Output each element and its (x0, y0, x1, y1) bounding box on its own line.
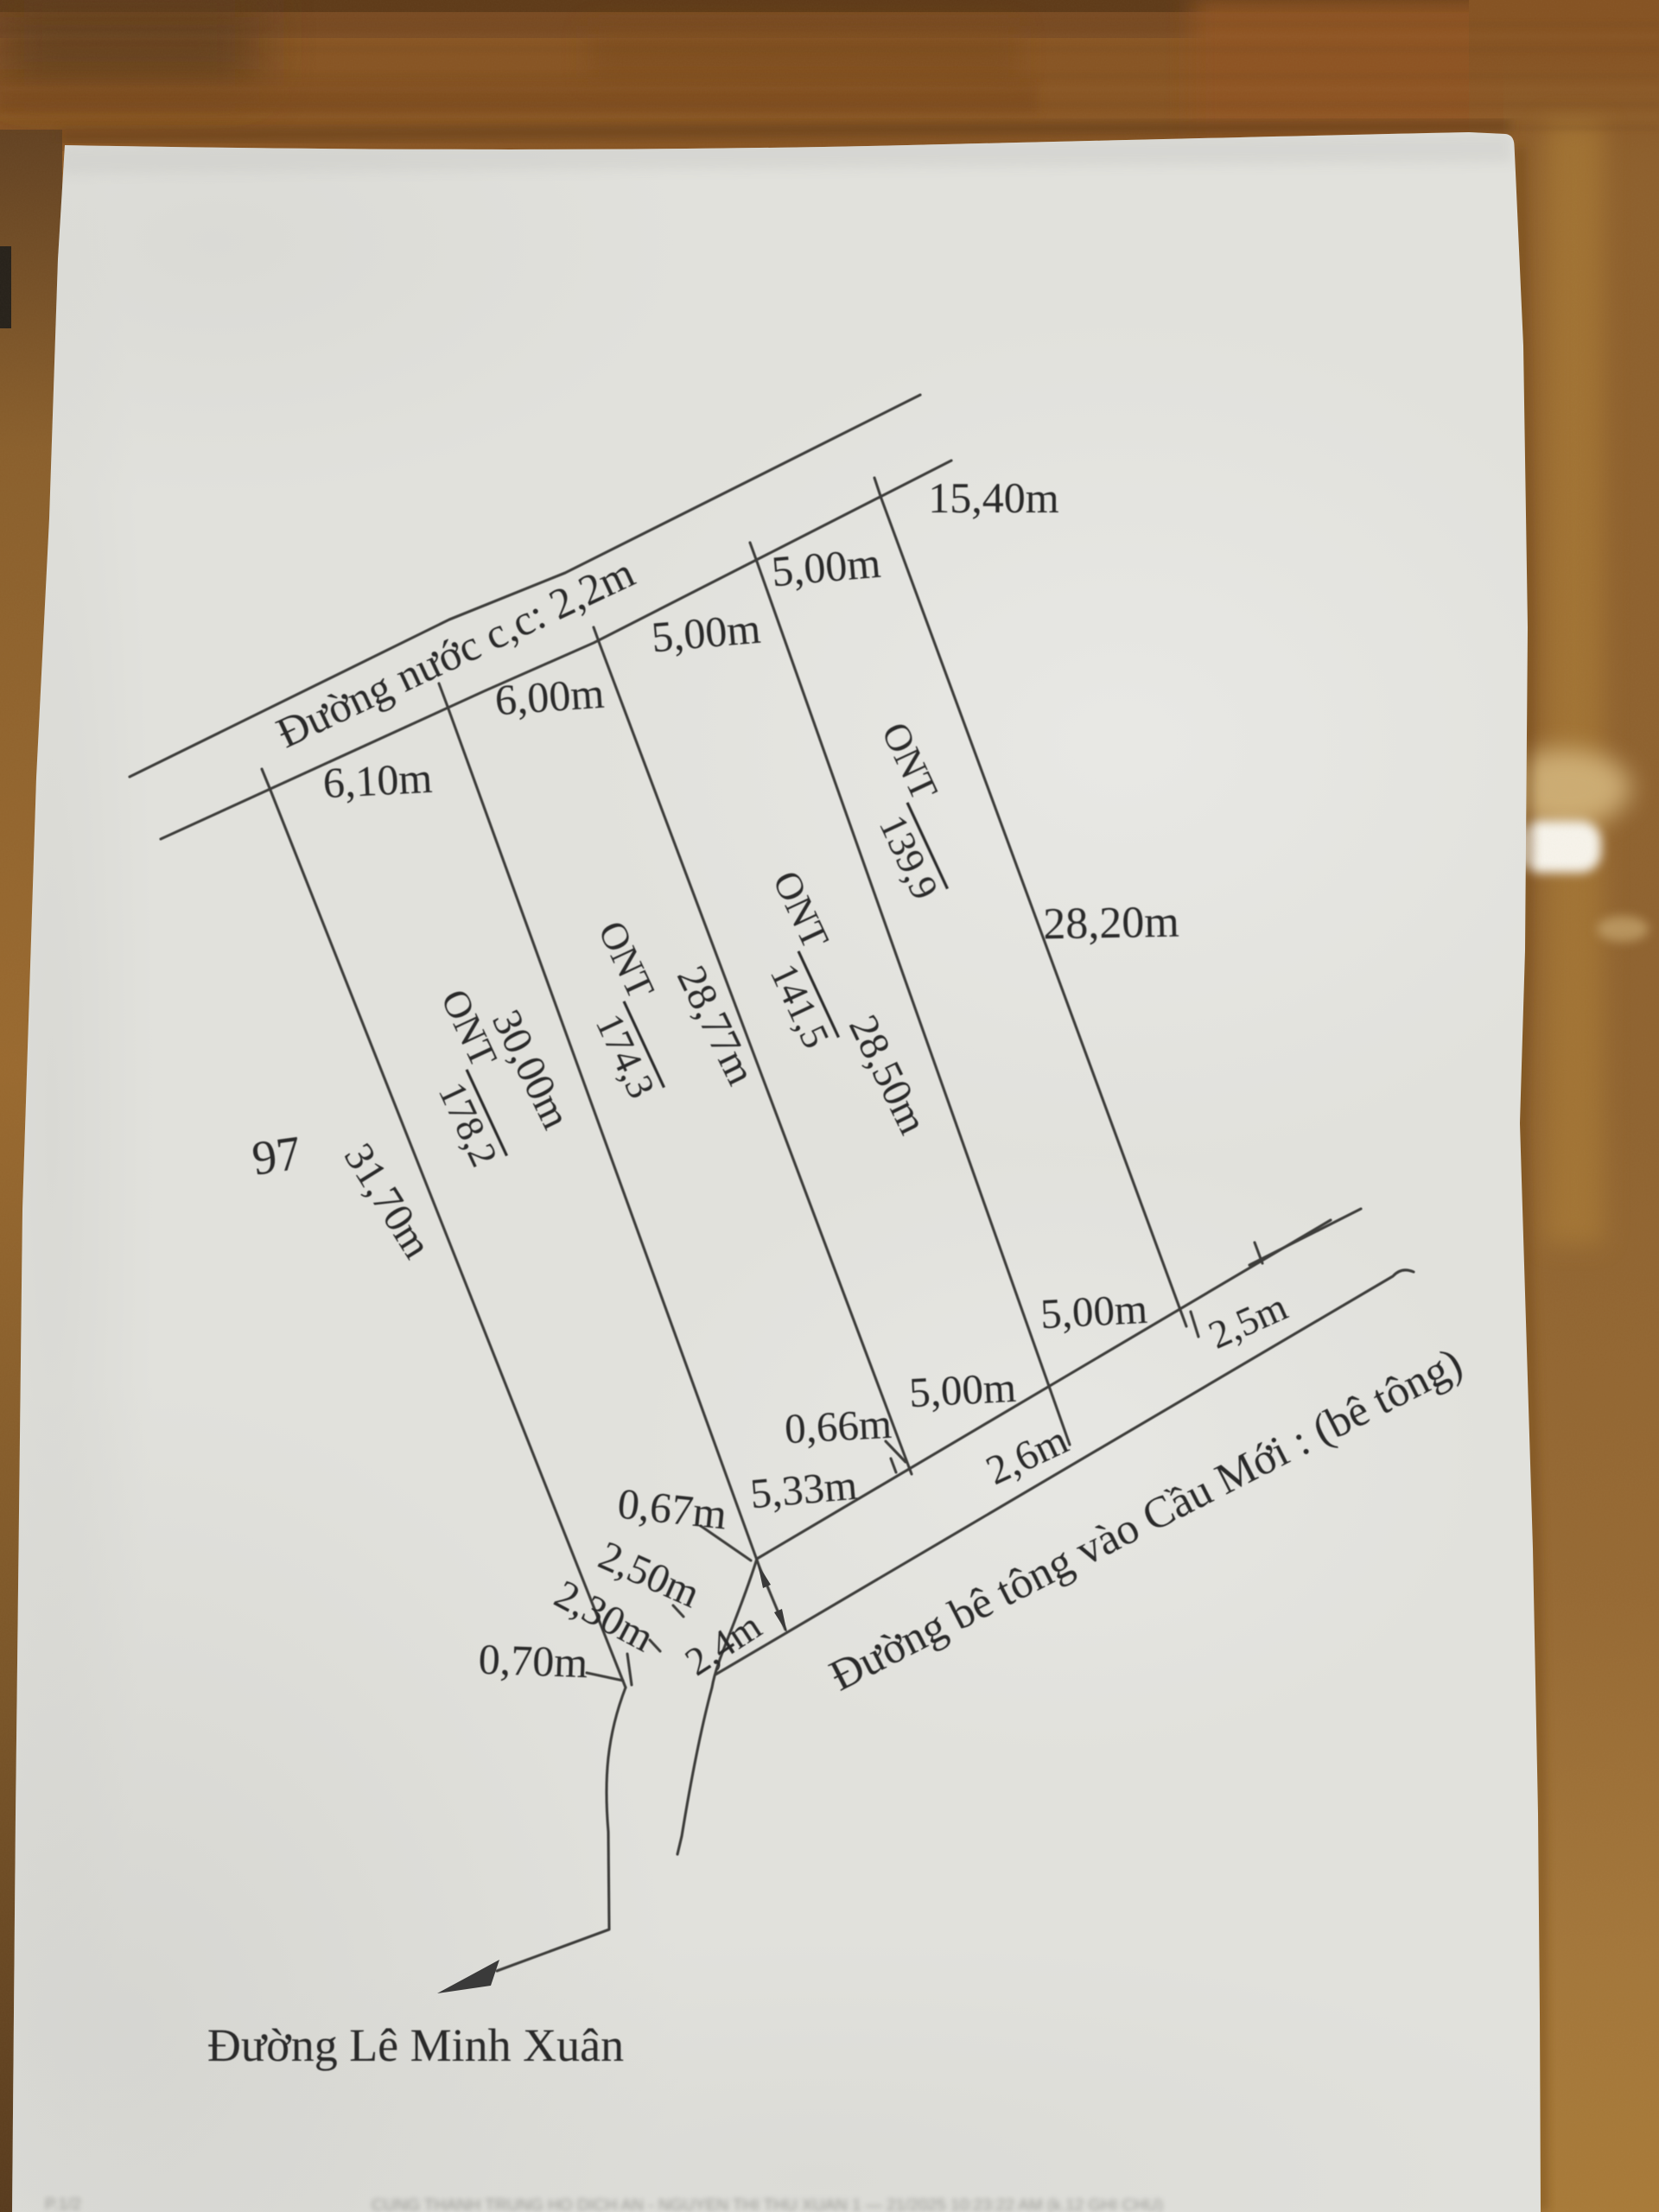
svg-text:5,00m: 5,00m (1039, 1285, 1149, 1338)
svg-text:5,00m: 5,00m (908, 1363, 1018, 1416)
svg-text:15,40m: 15,40m (928, 474, 1059, 522)
svg-text:5,33m: 5,33m (748, 1461, 859, 1518)
svg-text:P.1/2: P.1/2 (45, 2196, 81, 2212)
svg-text:6,10m: 6,10m (321, 753, 433, 808)
svg-text:CUNG THANH TRUNG HO DICH AN -: CUNG THANH TRUNG HO DICH AN - NGUYEN THI… (372, 2196, 1163, 2212)
svg-text:Đường Lê Minh Xuân: Đường Lê Minh Xuân (207, 2019, 624, 2071)
svg-text:0,66m: 0,66m (784, 1400, 893, 1452)
svg-text:5,00m: 5,00m (770, 538, 883, 596)
svg-text:97: 97 (249, 1126, 304, 1185)
svg-text:6,00m: 6,00m (493, 669, 606, 725)
svg-text:5,00m: 5,00m (650, 604, 763, 662)
svg-text:0,70m: 0,70m (478, 1635, 588, 1687)
svg-text:28,20m: 28,20m (1043, 898, 1179, 950)
